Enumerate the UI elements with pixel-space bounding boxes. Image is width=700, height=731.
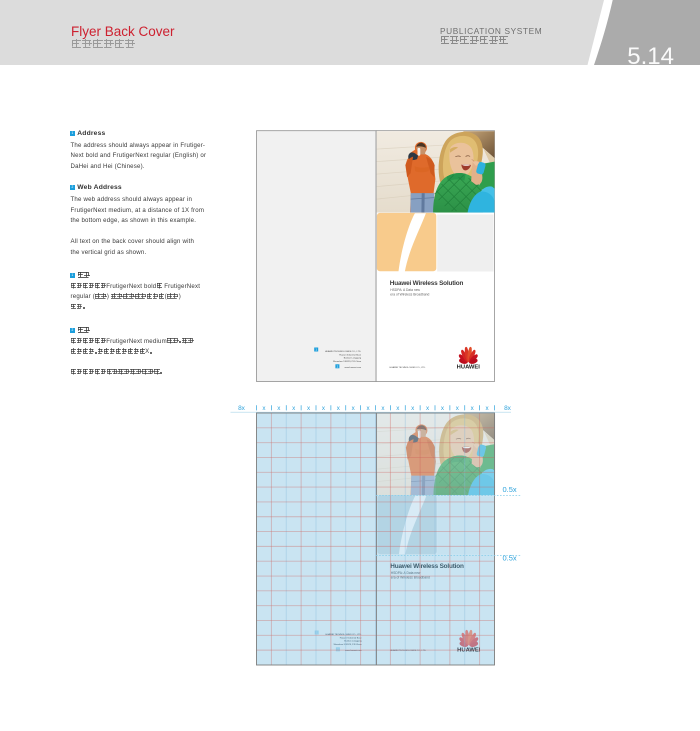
svg-text:Huawei Wireless Solution: Huawei Wireless Solution — [390, 563, 464, 570]
svg-text:Shenzhen 518129, P.R.China: Shenzhen 518129, P.R.China — [334, 644, 363, 646]
svg-text:x: x — [277, 405, 281, 412]
svg-text:x: x — [441, 405, 445, 412]
svg-text:0.5x: 0.5x — [503, 485, 517, 494]
svg-text:HUAWEI TECHNOLOGIES CO., LTD.: HUAWEI TECHNOLOGIES CO., LTD. — [324, 350, 361, 353]
svg-text:x: x — [307, 405, 311, 412]
svg-text:www.huawei.com: www.huawei.com — [344, 366, 361, 368]
svg-text:Bantian Longgang: Bantian Longgang — [343, 356, 361, 359]
svg-text:x: x — [471, 405, 475, 412]
svg-text:Huawei Industrial Base: Huawei Industrial Base — [340, 636, 363, 639]
svg-text:x: x — [352, 405, 356, 412]
svg-text:5.14: 5.14 — [627, 43, 674, 66]
svg-text:0.5x: 0.5x — [503, 554, 517, 563]
svg-text:x: x — [485, 405, 489, 412]
svg-text:Bantian Longgang: Bantian Longgang — [344, 640, 362, 643]
svg-text:HUAWEI: HUAWEI — [457, 648, 481, 654]
svg-text:8x: 8x — [238, 405, 246, 412]
svg-text:x: x — [262, 405, 266, 412]
svg-text:x: x — [366, 405, 370, 412]
svg-text:x: x — [456, 405, 460, 412]
svg-text:x: x — [426, 405, 430, 412]
svg-text:x: x — [292, 405, 296, 412]
svg-text:HSDPA: A Data new: HSDPA: A Data new — [390, 288, 420, 292]
svg-text:era of Wireless Broadband: era of Wireless Broadband — [390, 292, 429, 296]
svg-text:HUAWEI: HUAWEI — [456, 364, 480, 370]
svg-text:HSDPA: A Data new: HSDPA: A Data new — [391, 571, 421, 575]
svg-text:8x: 8x — [504, 405, 512, 412]
svg-text:HUAWEI TECHNOLOGIES CO., LTD.: HUAWEI TECHNOLOGIES CO., LTD. — [389, 366, 426, 369]
svg-text:Shenzhen 518129, P.R.China: Shenzhen 518129, P.R.China — [333, 361, 362, 363]
svg-text:x: x — [337, 405, 341, 412]
svg-text:x: x — [381, 405, 385, 412]
svg-text:x: x — [396, 405, 400, 412]
svg-text:Huawei Industrial Base: Huawei Industrial Base — [339, 353, 362, 356]
svg-text:x: x — [411, 405, 415, 412]
svg-text:x: x — [322, 405, 326, 412]
svg-text:Huawei Wireless Solution: Huawei Wireless Solution — [389, 280, 463, 287]
